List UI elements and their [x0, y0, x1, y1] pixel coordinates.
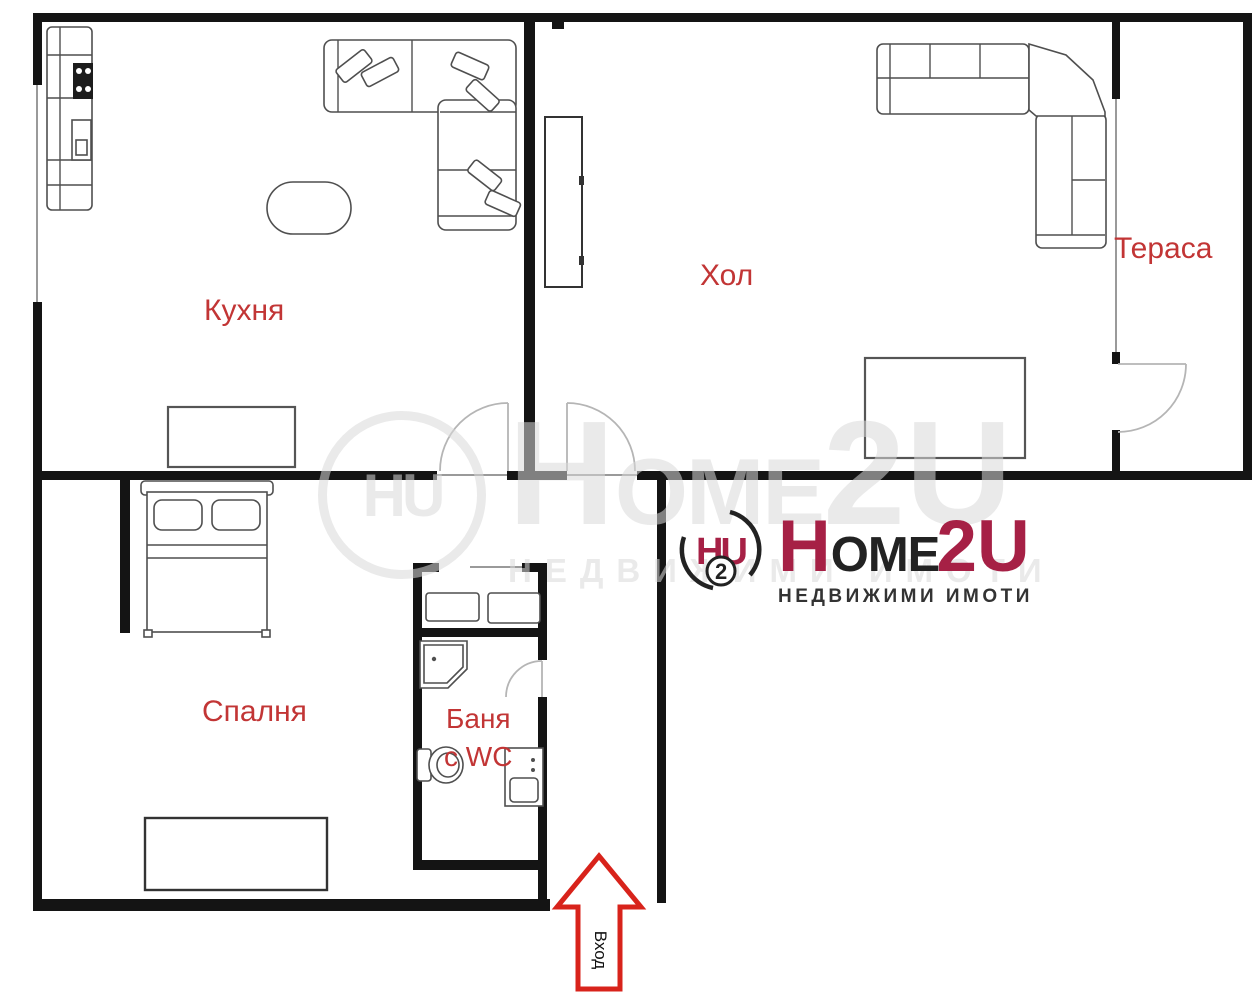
- entrance-arrow: [0, 0, 1258, 1000]
- floor-plan: HU HOME2U НЕДВИЖИМИ ИМОТИ Кухня Хол Тера…: [0, 0, 1258, 1000]
- entrance-label: Вход: [578, 912, 622, 988]
